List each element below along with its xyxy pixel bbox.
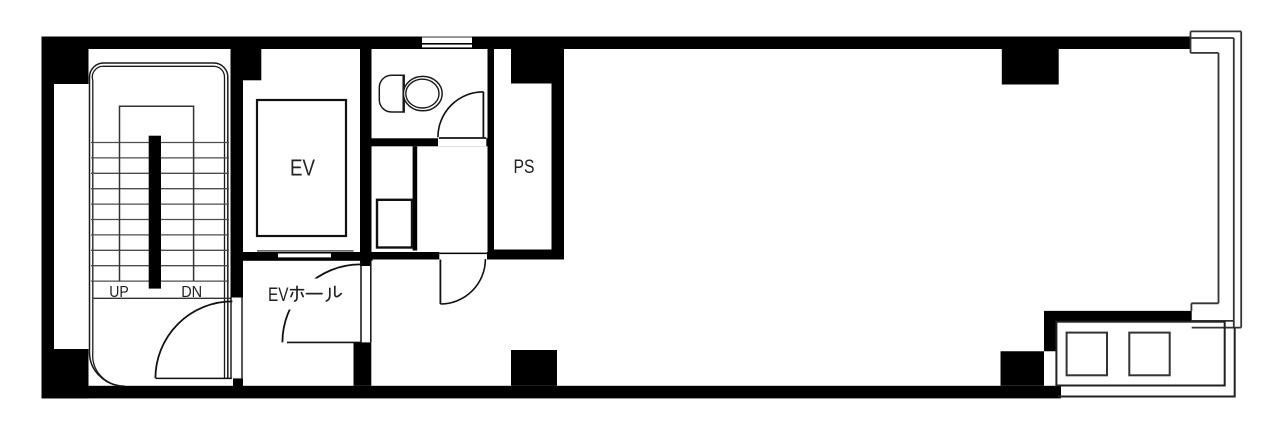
svg-text:EV: EV: [290, 155, 315, 181]
svg-text:PS: PS: [514, 156, 535, 178]
svg-text:UP: UP: [109, 284, 129, 301]
svg-text:DN: DN: [181, 284, 202, 301]
svg-text:EV: EV: [268, 284, 289, 306]
